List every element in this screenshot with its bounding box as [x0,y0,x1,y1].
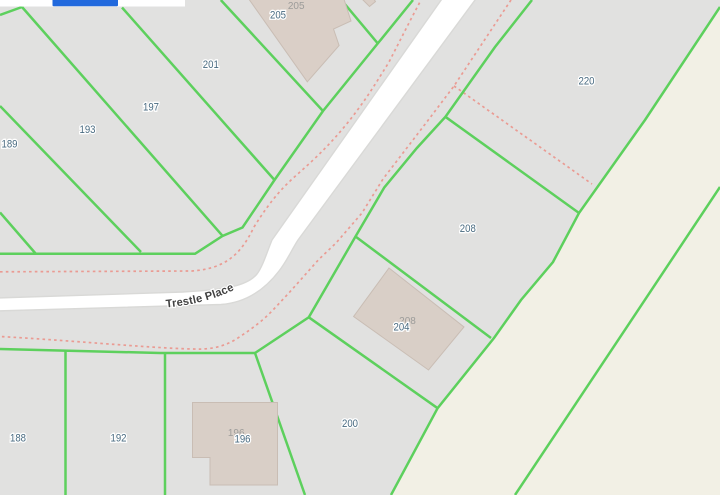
svg-text:204: 204 [394,322,410,334]
svg-text:192: 192 [111,433,127,445]
svg-text:220: 220 [579,76,595,88]
svg-text:193: 193 [80,124,96,136]
svg-text:208: 208 [460,223,476,235]
svg-text:201: 201 [203,59,219,71]
svg-text:200: 200 [342,418,358,430]
svg-text:197: 197 [143,102,159,114]
svg-text:189: 189 [2,139,18,151]
svg-text:188: 188 [10,433,26,445]
svg-text:205: 205 [288,1,305,12]
svg-text:196: 196 [235,434,251,446]
svg-text:205: 205 [270,10,286,22]
